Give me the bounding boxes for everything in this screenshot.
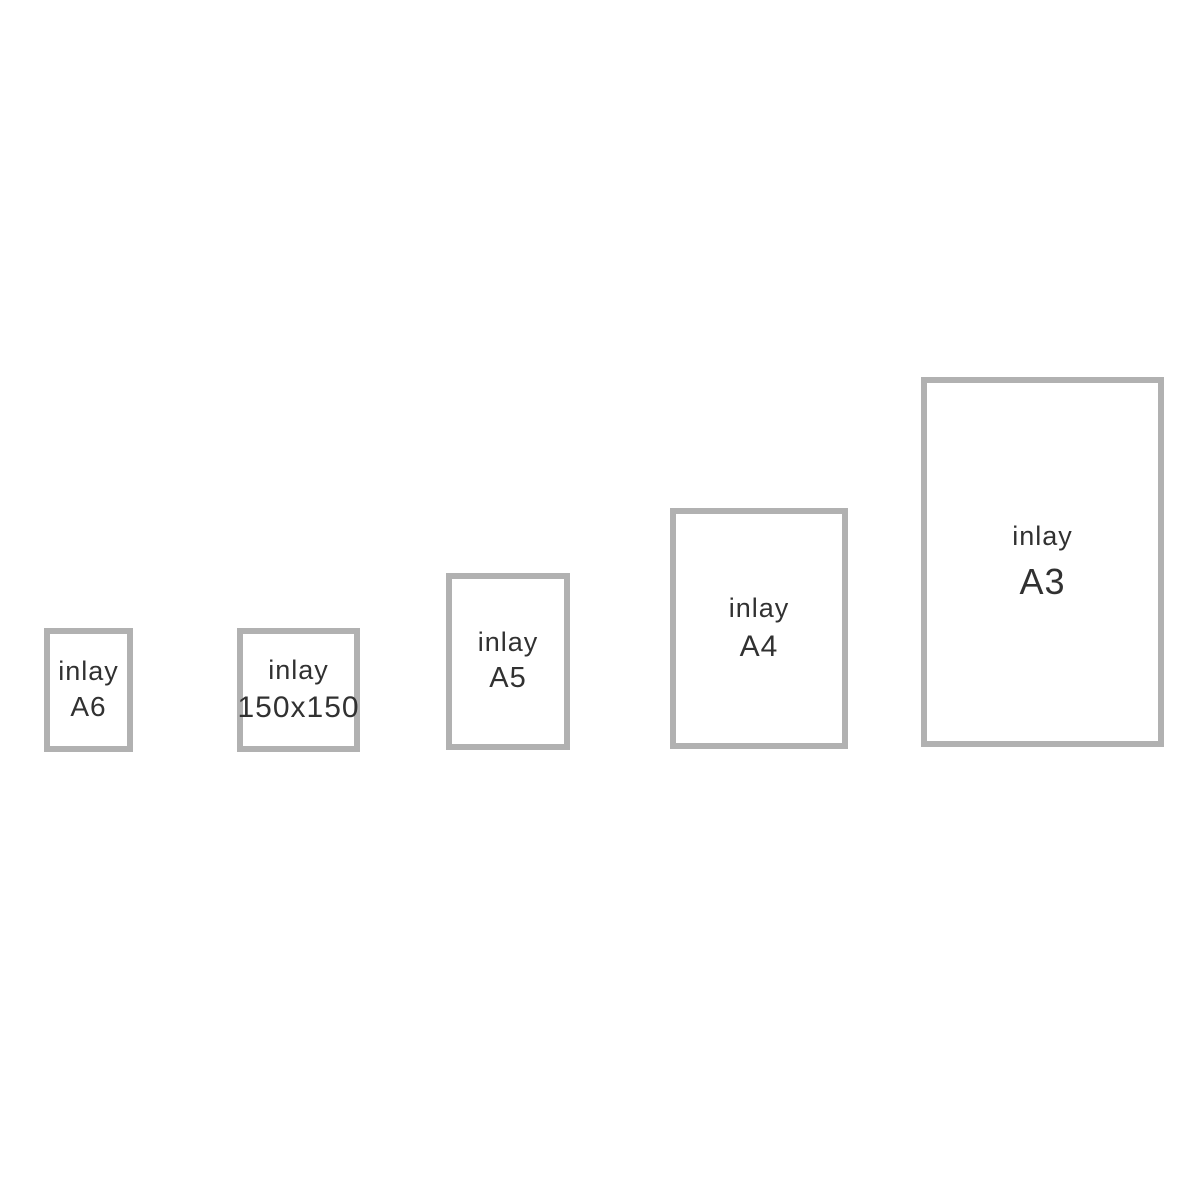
inlay-label: inlay: [268, 656, 329, 686]
size-label-a6: A6: [70, 692, 106, 723]
inlay-sizes-diagram: inlay A6 inlay 150x150 inlay A5 inlay A4…: [0, 0, 1200, 1200]
size-label-a3: A3: [1019, 562, 1065, 602]
inlay-label: inlay: [478, 628, 539, 658]
size-label-a4: A4: [740, 630, 779, 663]
inlay-label: inlay: [1012, 522, 1073, 552]
inlay-box-a6: inlay A6: [44, 628, 133, 752]
inlay-box-150x150: inlay 150x150: [237, 628, 360, 752]
inlay-label: inlay: [58, 657, 119, 687]
size-label-150x150: 150x150: [237, 691, 359, 724]
inlay-label: inlay: [729, 594, 790, 624]
inlay-box-a3: inlay A3: [921, 377, 1164, 747]
inlay-box-a5: inlay A5: [446, 573, 570, 750]
size-label-a5: A5: [489, 663, 526, 695]
inlay-box-a4: inlay A4: [670, 508, 848, 749]
